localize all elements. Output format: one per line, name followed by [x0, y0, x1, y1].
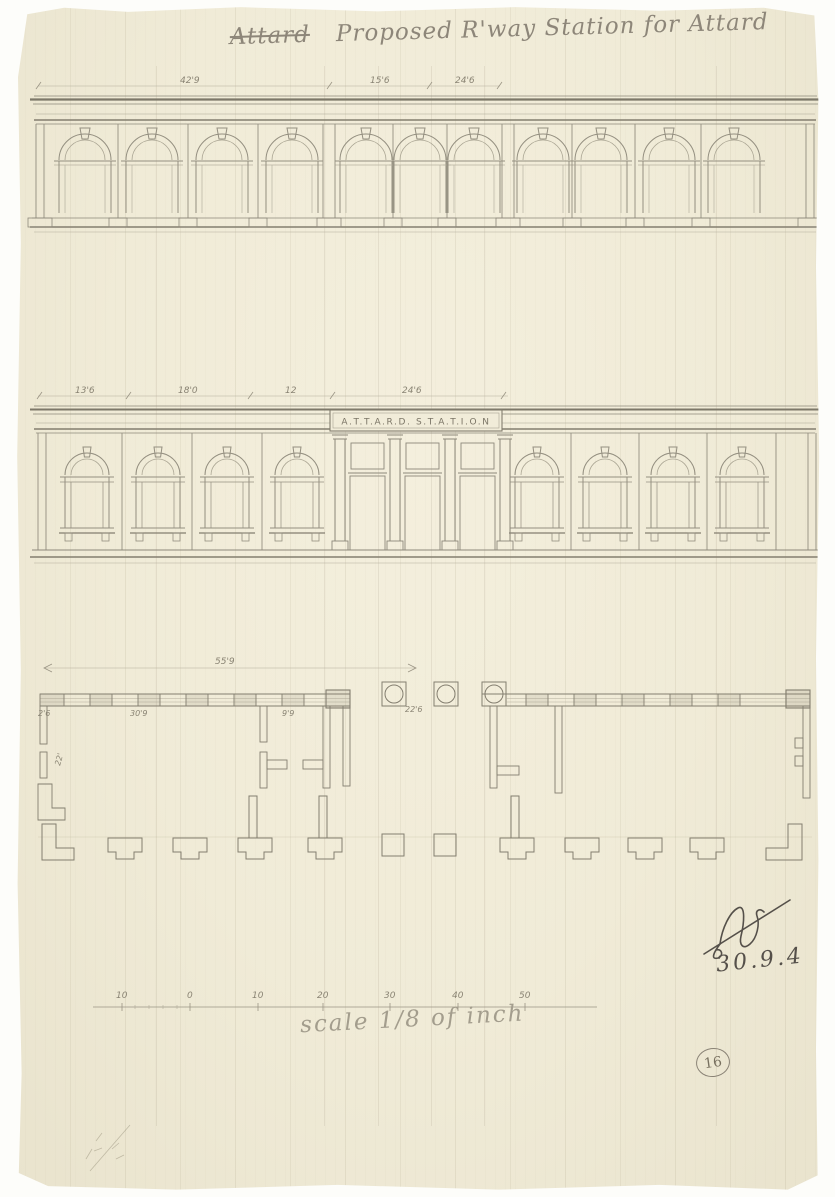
dim-label: 24'6 — [402, 386, 422, 396]
station-name-board: A.T.T.A.R.D. S.T.A.T.I.O.N — [330, 410, 502, 431]
corner-pencil-marks — [60, 1111, 180, 1191]
station-name-text: A.T.T.A.R.D. S.T.A.T.I.O.N — [341, 418, 490, 428]
dim-label: 30'9 — [130, 709, 147, 718]
entrance-bay — [332, 435, 513, 550]
dim-label: 13'6 — [75, 386, 95, 396]
dim-label: 22'6 — [405, 705, 422, 714]
page-number-badge: 16 — [694, 1046, 732, 1079]
dim-label: 42'9 — [180, 76, 200, 86]
dim-label: 55'9 — [215, 657, 235, 667]
sheet-title: AttardProposed R'way Station for Attard — [229, 8, 810, 70]
scale-tick-label: 10 — [116, 991, 128, 1001]
scale-tick-label: 10 — [252, 991, 264, 1001]
ground-plan: 55'9 2'6 30'9 9'9 22'6 22 — [30, 648, 820, 883]
dim-label: 15'6 — [370, 76, 390, 86]
dim-label: 22' — [53, 752, 65, 766]
drawing-sheet: AttardProposed R'way Station for Attard … — [16, 6, 820, 1192]
dim-label: 18'0 — [178, 386, 198, 396]
forecourt-elevation: 13'6 18'0 12 24'6 A.T.T.A.R.D. S.T.A.T.I… — [30, 383, 820, 578]
page-number: 16 — [703, 1053, 723, 1071]
scale-tick-label: 30 — [384, 991, 396, 1001]
title-text: Proposed R'way Station for Attard — [336, 9, 769, 47]
dim-label: 24'6 — [455, 76, 475, 86]
scale-tick-label: 20 — [317, 991, 329, 1001]
dim-label: 9'9 — [282, 709, 294, 718]
platform-side-elevation: 42'9 15'6 24'6 — [30, 72, 820, 247]
dim-label: 2'6 — [38, 709, 50, 718]
scale-tick-label: 0 — [187, 991, 193, 1001]
dim-label: 12 — [285, 386, 297, 396]
title-struck-word: Attard — [229, 22, 310, 50]
scale-tick-label: 40 — [452, 991, 464, 1001]
signature-block: 30.9.4 — [698, 886, 828, 986]
